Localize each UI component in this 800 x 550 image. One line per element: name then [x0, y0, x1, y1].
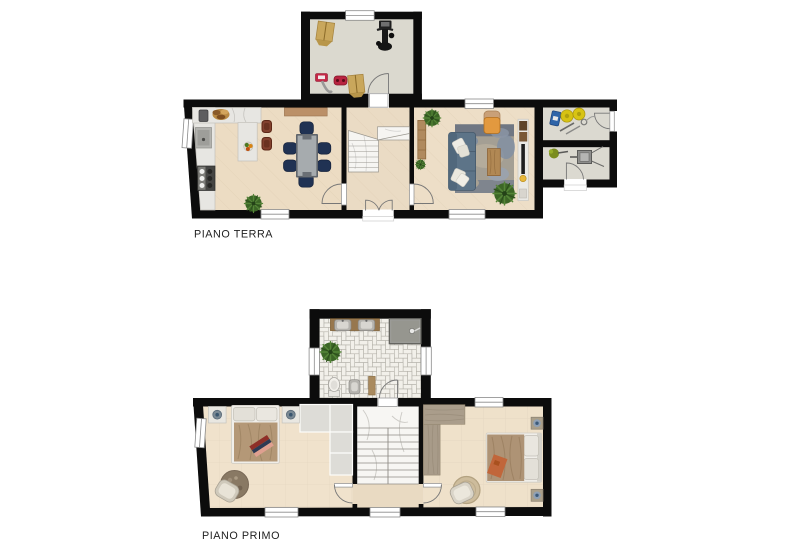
- svg-text:PIANO PRIMO: PIANO PRIMO: [202, 530, 280, 542]
- svg-text:PIANO TERRA: PIANO TERRA: [194, 229, 273, 241]
